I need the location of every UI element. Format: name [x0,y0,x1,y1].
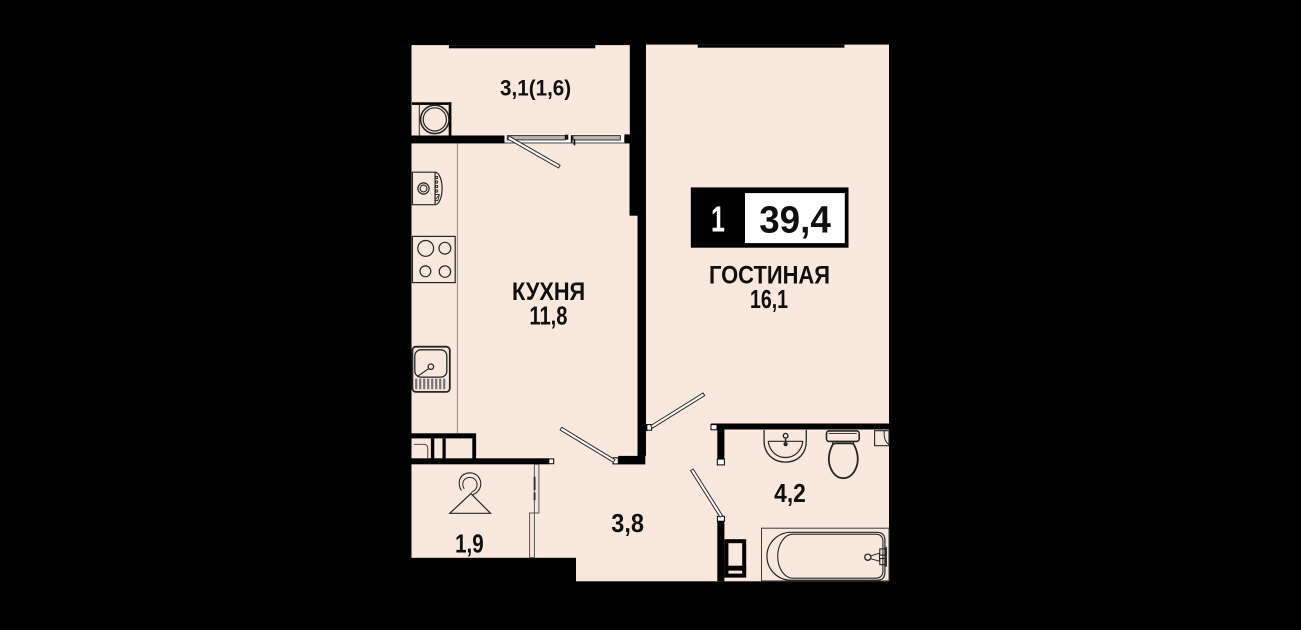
svg-text:4,2: 4,2 [774,478,806,508]
svg-text:1: 1 [711,199,725,240]
svg-text:16,1: 16,1 [750,284,788,314]
svg-text:11,8: 11,8 [529,301,567,331]
svg-text:39,4: 39,4 [759,199,831,241]
svg-text:3,8: 3,8 [611,508,644,538]
svg-text:1,9: 1,9 [455,529,484,559]
svg-text:3,1(1,6): 3,1(1,6) [500,76,571,101]
